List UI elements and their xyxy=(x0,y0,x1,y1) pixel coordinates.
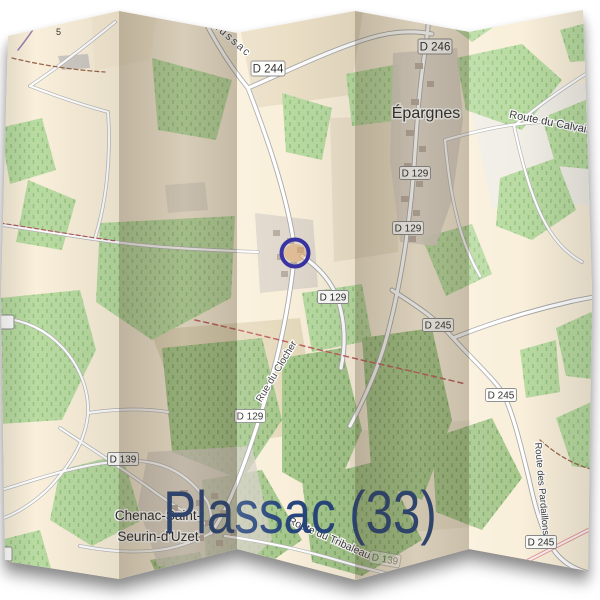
road-ref-badge: D 245 xyxy=(526,536,557,549)
paper-shadow: mussac Route du Calvaire Rue du Clocher … xyxy=(0,0,600,600)
svg-text:D 245: D 245 xyxy=(488,391,515,402)
svg-text:D 129: D 129 xyxy=(402,169,429,180)
road-ref-badge: D 129 xyxy=(400,167,431,180)
road-ref-badge: D 244 xyxy=(251,61,285,76)
tiny-map-number: 5 xyxy=(56,27,61,37)
map-title: Plassac (33) xyxy=(163,481,436,544)
svg-text:D 245: D 245 xyxy=(425,321,452,332)
folded-map: mussac Route du Calvaire Rue du Clocher … xyxy=(0,0,600,600)
map-preview-scene: mussac Route du Calvaire Rue du Clocher … xyxy=(0,0,600,600)
clipped-road-badge xyxy=(0,315,14,329)
road-ref-badge: D 129 xyxy=(235,410,266,423)
road-ref-badge: D 245 xyxy=(423,319,454,332)
svg-text:D 245: D 245 xyxy=(528,538,555,549)
svg-text:D 129: D 129 xyxy=(237,412,264,423)
svg-text:D 246: D 246 xyxy=(420,42,451,54)
svg-text:D 244: D 244 xyxy=(253,64,284,76)
town-label-epargnes: Épargnes xyxy=(392,103,461,122)
road-ref-badge: D 129 xyxy=(393,222,424,235)
road-ref-badge: D 139 xyxy=(108,453,139,466)
road-ref-badge: D 246 xyxy=(418,39,452,54)
svg-text:D 139: D 139 xyxy=(110,455,137,466)
road-ref-badge: D 129 xyxy=(318,291,349,304)
svg-text:D 129: D 129 xyxy=(395,224,422,235)
road-ref-badge: D 245 xyxy=(486,389,517,402)
clipped-road-badge xyxy=(0,547,12,561)
svg-text:D 129: D 129 xyxy=(320,293,347,304)
